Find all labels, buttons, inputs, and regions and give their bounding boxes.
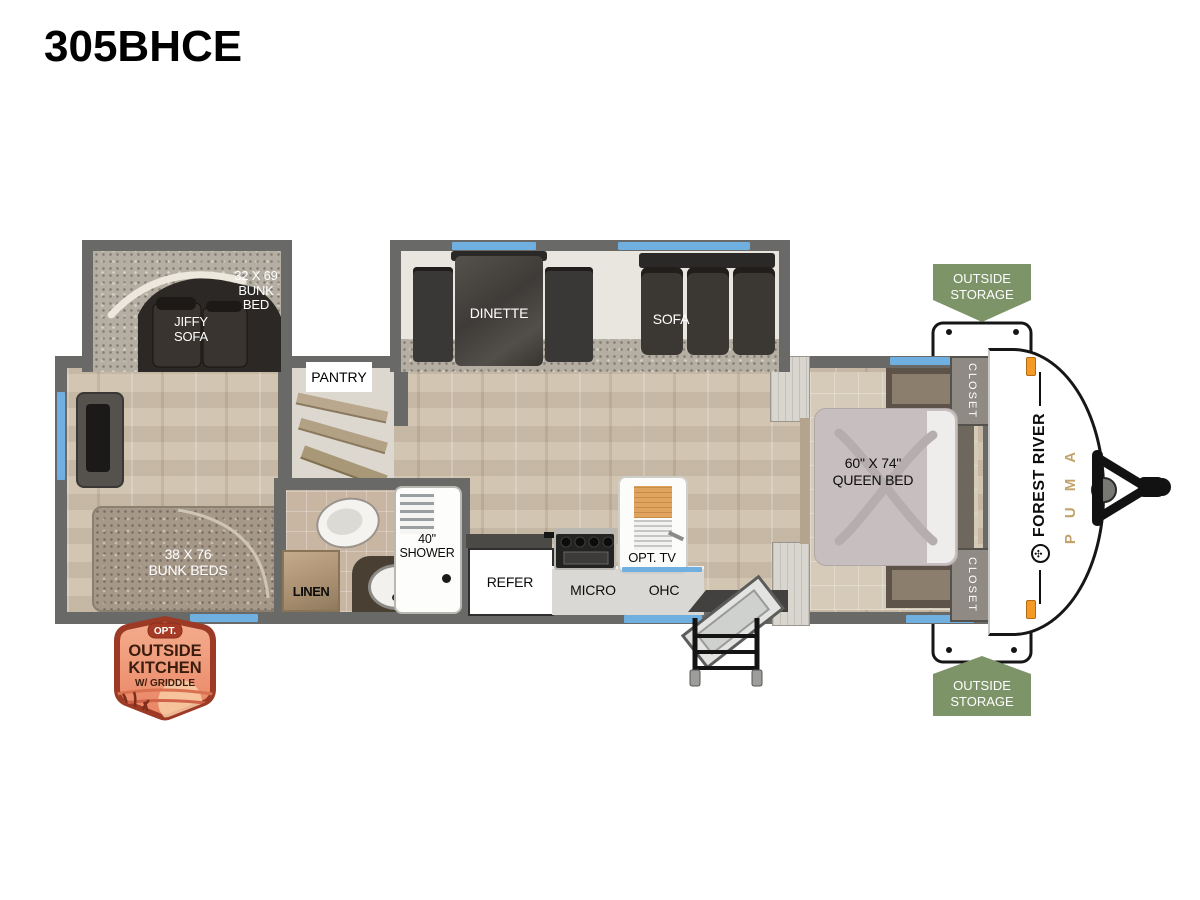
forest-river-emblem-icon: ✣ (1031, 544, 1050, 563)
outside-storage-top-line1: OUTSIDE (933, 271, 1031, 287)
shower-text: SHOWER (396, 546, 458, 560)
shower-drain (442, 574, 451, 583)
bunk-over-bed-word1: BUNK (219, 284, 281, 299)
shower-size: 40" (396, 532, 458, 546)
sofa-back (639, 253, 775, 268)
queen-bed: 60" X 74" QUEEN BED (814, 408, 958, 566)
jiffy-sofa-label: JIFFY SOFA (159, 315, 223, 345)
kitchen-badge-opt: OPT. (154, 626, 176, 637)
shower-head-lines (400, 494, 434, 534)
outside-storage-bottom-line1: OUTSIDE (933, 678, 1031, 694)
window-accent (452, 242, 536, 250)
nightstand-top-surface (892, 374, 950, 404)
kitchen-badge-line2: KITCHEN (128, 659, 201, 677)
linen-cabinet: LINEN (282, 550, 340, 612)
refer-top (466, 534, 552, 548)
nightstand-top-surface (892, 570, 950, 600)
entertainment-cabinet: OPT. TV (618, 476, 688, 574)
refer-label: REFER (470, 574, 550, 590)
floorplan-page: 32 X 69 BUNK BED JIFFY SOFA DINETTE SOFA (0, 0, 1200, 900)
stove (554, 528, 616, 570)
dinette-bench-right (545, 267, 593, 362)
dinette-bench-left (413, 267, 453, 362)
tv-wood-panel (634, 486, 672, 518)
outside-kitchen-badge: OPT. OUTSIDE KITCHEN W/ GRIDDLE (106, 614, 224, 726)
queen-bed-size: 60" X 74" (815, 455, 931, 472)
bedroom-nightstand-top (886, 368, 956, 412)
counter-accent (622, 567, 702, 572)
dinette-label: DINETTE (455, 305, 543, 321)
window-accent (57, 392, 65, 480)
tv-grille (634, 520, 672, 550)
shower: 40" SHOWER (394, 486, 462, 614)
queen-bed-text: QUEEN BED (815, 472, 931, 489)
logo-flourish-line (1039, 372, 1041, 406)
outside-storage-bottom-line2: STORAGE (933, 694, 1031, 710)
bedroom-cabinet-bottom (772, 542, 810, 626)
shower-label: 40" SHOWER (396, 532, 458, 561)
closet-front-label: CLOSET (966, 363, 978, 419)
linen-label: LINEN (284, 584, 338, 599)
bunk-over-bed-label: 32 X 69 BUNK BED (219, 269, 281, 313)
model-name: PUMA (1062, 425, 1082, 555)
dinette-sofa-slideout: DINETTE SOFA (390, 240, 790, 372)
jiffy-sofa-line1: JIFFY (159, 315, 223, 330)
ohc-label: OHC (638, 582, 690, 598)
window-accent (618, 242, 750, 250)
bunk-over-bed-word2: BED (219, 298, 281, 313)
tv-screen (86, 404, 110, 472)
manufacturer-name: FOREST RIVER (1031, 413, 1049, 537)
bunk-over-bed-size: 32 X 69 (219, 269, 281, 284)
toilet-lid (324, 505, 365, 538)
pantry-shelf (296, 393, 388, 424)
floorplan-title: 305BHCE (44, 22, 242, 72)
manufacturer-logo: ✣ FOREST RIVER (1027, 368, 1053, 608)
refrigerator: REFER (468, 548, 554, 616)
entry-door-accent (624, 615, 702, 623)
bunk-beds-label: 38 X 76 BUNK BEDS (94, 546, 282, 578)
queen-bed-label: 60" X 74" QUEEN BED (815, 455, 931, 489)
burners (556, 534, 614, 568)
kitchen-badge-line3: W/ GRIDDLE (135, 678, 195, 689)
outside-storage-top-line2: STORAGE (933, 287, 1031, 303)
bunk-beds-size: 38 X 76 (94, 546, 282, 562)
kitchen-badge-line1: OUTSIDE (128, 642, 201, 660)
logo-flourish-line (1039, 570, 1041, 604)
rear-slideout: 32 X 69 BUNK BED JIFFY SOFA (82, 240, 292, 372)
bunkroom-tv (76, 392, 124, 488)
opt-tv-label: OPT. TV (620, 550, 684, 565)
bedroom-nightstand-bottom (886, 562, 956, 608)
rear-slideout-interior: 32 X 69 BUNK BED JIFFY SOFA (93, 251, 281, 372)
dinette-sofa-interior: DINETTE SOFA (401, 251, 779, 372)
sofa-cushion (733, 267, 775, 355)
closet-rear-label: CLOSET (966, 557, 978, 613)
sofa-label: SOFA (641, 311, 701, 327)
micro-label: MICRO (560, 582, 626, 598)
bedroom-half-wall (800, 418, 810, 544)
jiffy-sofa-line2: SOFA (159, 330, 223, 345)
bunk-beds-text: BUNK BEDS (94, 562, 282, 578)
bunk-beds: 38 X 76 BUNK BEDS (92, 506, 284, 612)
pantry-label: PANTRY (306, 362, 372, 392)
